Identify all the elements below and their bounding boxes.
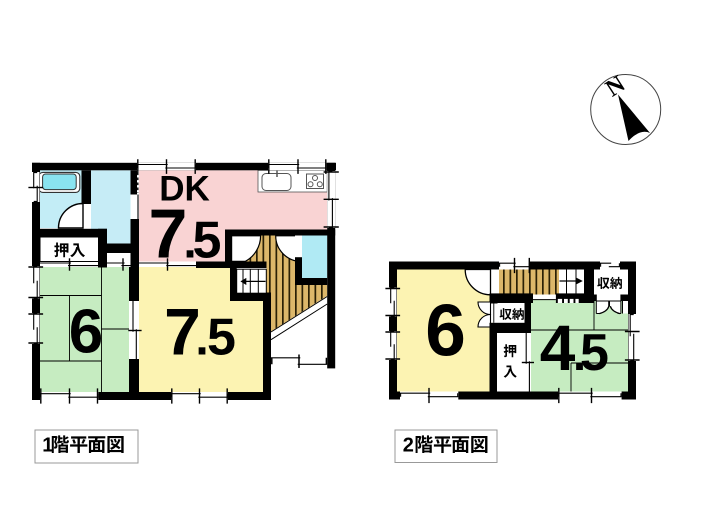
svg-text:2: 2 <box>403 434 414 456</box>
svg-text:5: 5 <box>580 324 609 382</box>
svg-text:6: 6 <box>69 298 103 367</box>
svg-text:1: 1 <box>42 434 53 456</box>
svg-text:6: 6 <box>425 291 466 372</box>
svg-text:7: 7 <box>149 195 188 273</box>
svg-text:5: 5 <box>207 309 236 367</box>
svg-text:5: 5 <box>193 212 222 270</box>
svg-text:4: 4 <box>540 312 576 384</box>
